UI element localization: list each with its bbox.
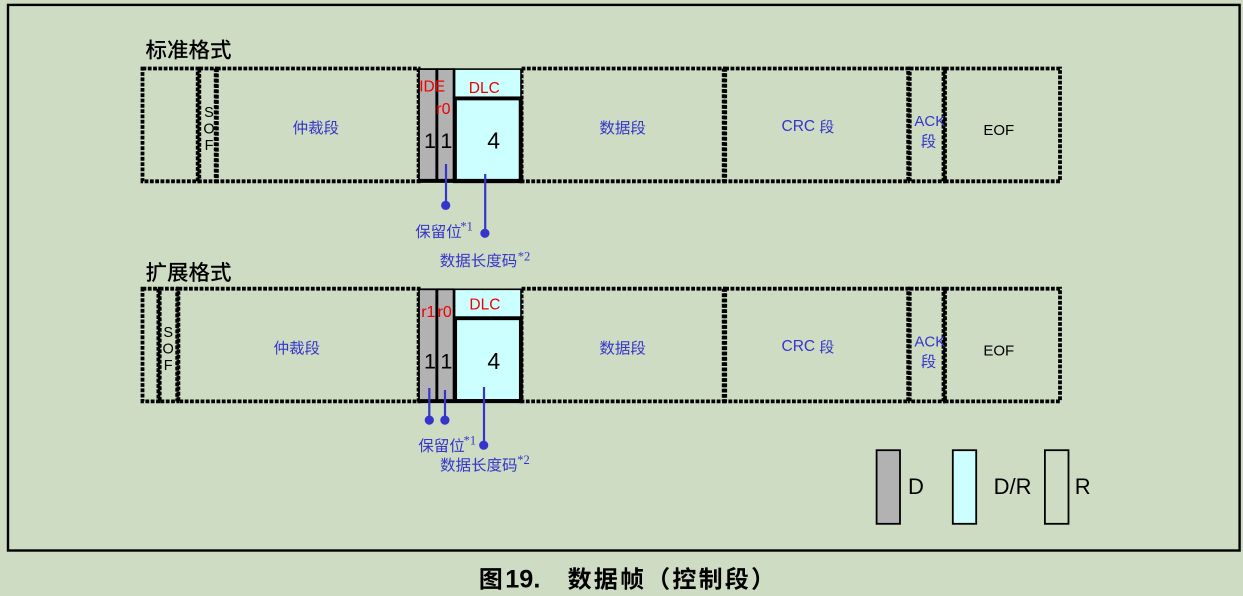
svg-text:S: S — [204, 105, 214, 121]
svg-text:CRC: CRC — [782, 338, 816, 355]
svg-text:ACK: ACK — [914, 113, 945, 130]
svg-text:S: S — [163, 325, 173, 341]
svg-text:EOF: EOF — [983, 122, 1014, 139]
svg-text:ACK: ACK — [914, 333, 945, 350]
svg-text:DLC: DLC — [469, 80, 500, 97]
svg-text:O: O — [203, 122, 214, 138]
svg-text:*1: *1 — [460, 219, 473, 233]
svg-text:1: 1 — [440, 350, 452, 374]
svg-text:1: 1 — [424, 129, 436, 153]
svg-text:19.: 19. — [505, 565, 540, 593]
svg-text:D: D — [908, 474, 924, 499]
svg-text:4: 4 — [487, 348, 500, 374]
svg-text:*2: *2 — [517, 453, 530, 467]
svg-text:EOF: EOF — [983, 342, 1014, 359]
svg-text:R: R — [1075, 474, 1091, 499]
svg-text:r0: r0 — [436, 101, 450, 118]
svg-text:1: 1 — [440, 129, 452, 153]
svg-text:r0: r0 — [438, 304, 452, 321]
svg-text:D/R: D/R — [994, 474, 1032, 499]
svg-text:4: 4 — [487, 128, 500, 154]
svg-text:DLC: DLC — [469, 296, 500, 313]
svg-text:1: 1 — [424, 350, 436, 374]
svg-text:*2: *2 — [518, 249, 531, 263]
svg-text:IDE: IDE — [419, 79, 445, 96]
svg-text:*1: *1 — [464, 434, 477, 448]
svg-text:F: F — [164, 358, 173, 374]
svg-text:r1: r1 — [421, 304, 435, 321]
svg-text:CRC: CRC — [782, 118, 816, 135]
svg-text:F: F — [205, 138, 214, 154]
svg-text:O: O — [163, 342, 174, 358]
